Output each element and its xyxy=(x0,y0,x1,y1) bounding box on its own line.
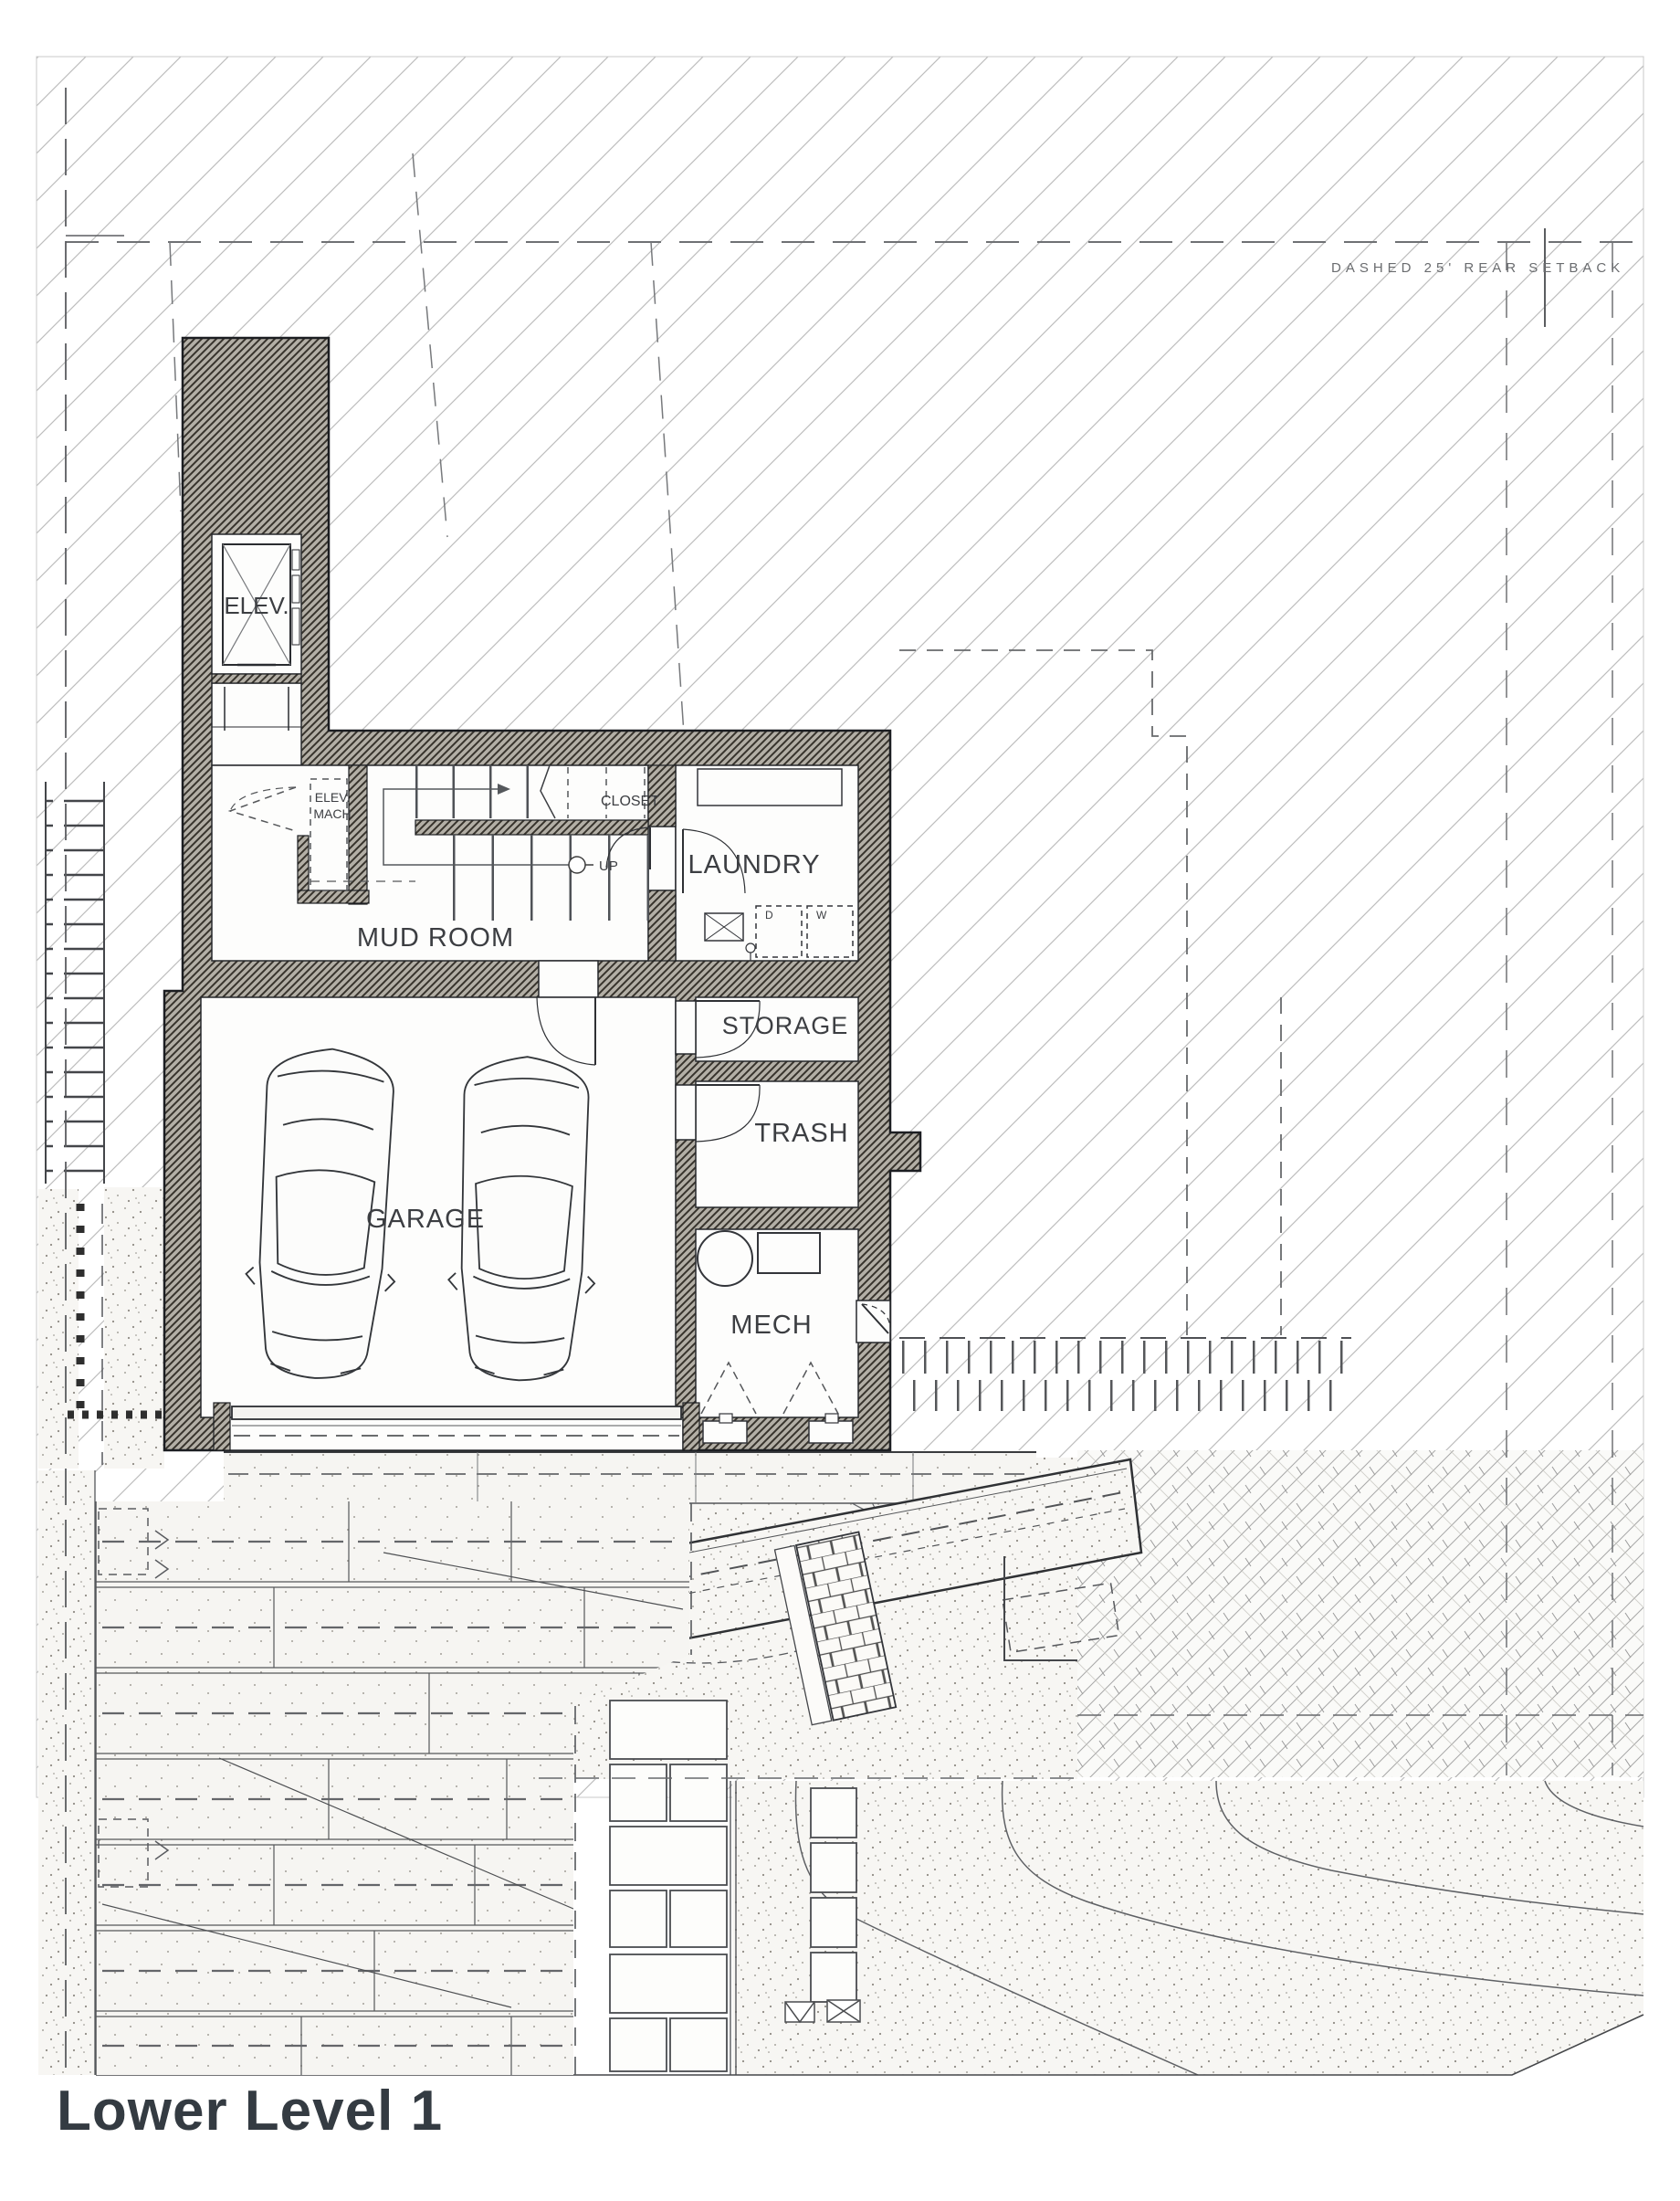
room-label-closet: CLOSET xyxy=(601,794,659,809)
room-label-mud-room: MUD ROOM xyxy=(357,923,514,953)
room-label-elev-mach-2: MACH xyxy=(313,806,351,821)
stair-landing-opening xyxy=(648,827,676,890)
elev-mach-wall xyxy=(349,765,367,904)
room-label-elevator: ELEV. xyxy=(224,592,289,619)
room-label-laundry: LAUNDRY xyxy=(688,850,820,879)
room-label-storage: STORAGE xyxy=(722,1012,849,1039)
stairs-direction-label: UP xyxy=(599,858,618,874)
garage-door-opening xyxy=(228,1417,683,1450)
water-heater-icon xyxy=(698,1231,752,1286)
garage-apron xyxy=(224,1450,1036,1503)
floor-plan-drawing: ELEV. ELEV. MACH CLOSET UP MUD ROOM LAUN… xyxy=(0,0,1680,2201)
mech-equipment xyxy=(758,1233,820,1273)
appliance-label-washer: W xyxy=(816,909,827,921)
planting-crosshatch-zone xyxy=(1077,1450,1643,1777)
rear-setback-note: DASHED 25' REAR SETBACK xyxy=(1331,260,1624,276)
storage-door-opening xyxy=(676,1001,696,1054)
stair-stringer xyxy=(415,820,648,835)
room-label-mech: MECH xyxy=(730,1311,812,1340)
room-label-garage: GARAGE xyxy=(366,1205,485,1234)
room-label-trash: TRASH xyxy=(754,1119,848,1148)
mudroom-garage-door-opening xyxy=(539,961,598,997)
room-label-elev-mach-1: ELEV. xyxy=(315,790,350,805)
page-title: Lower Level 1 xyxy=(57,2080,443,2143)
trash-door-opening xyxy=(676,1085,696,1140)
appliance-label-dryer: D xyxy=(765,909,773,921)
up-marker-icon xyxy=(569,857,585,873)
